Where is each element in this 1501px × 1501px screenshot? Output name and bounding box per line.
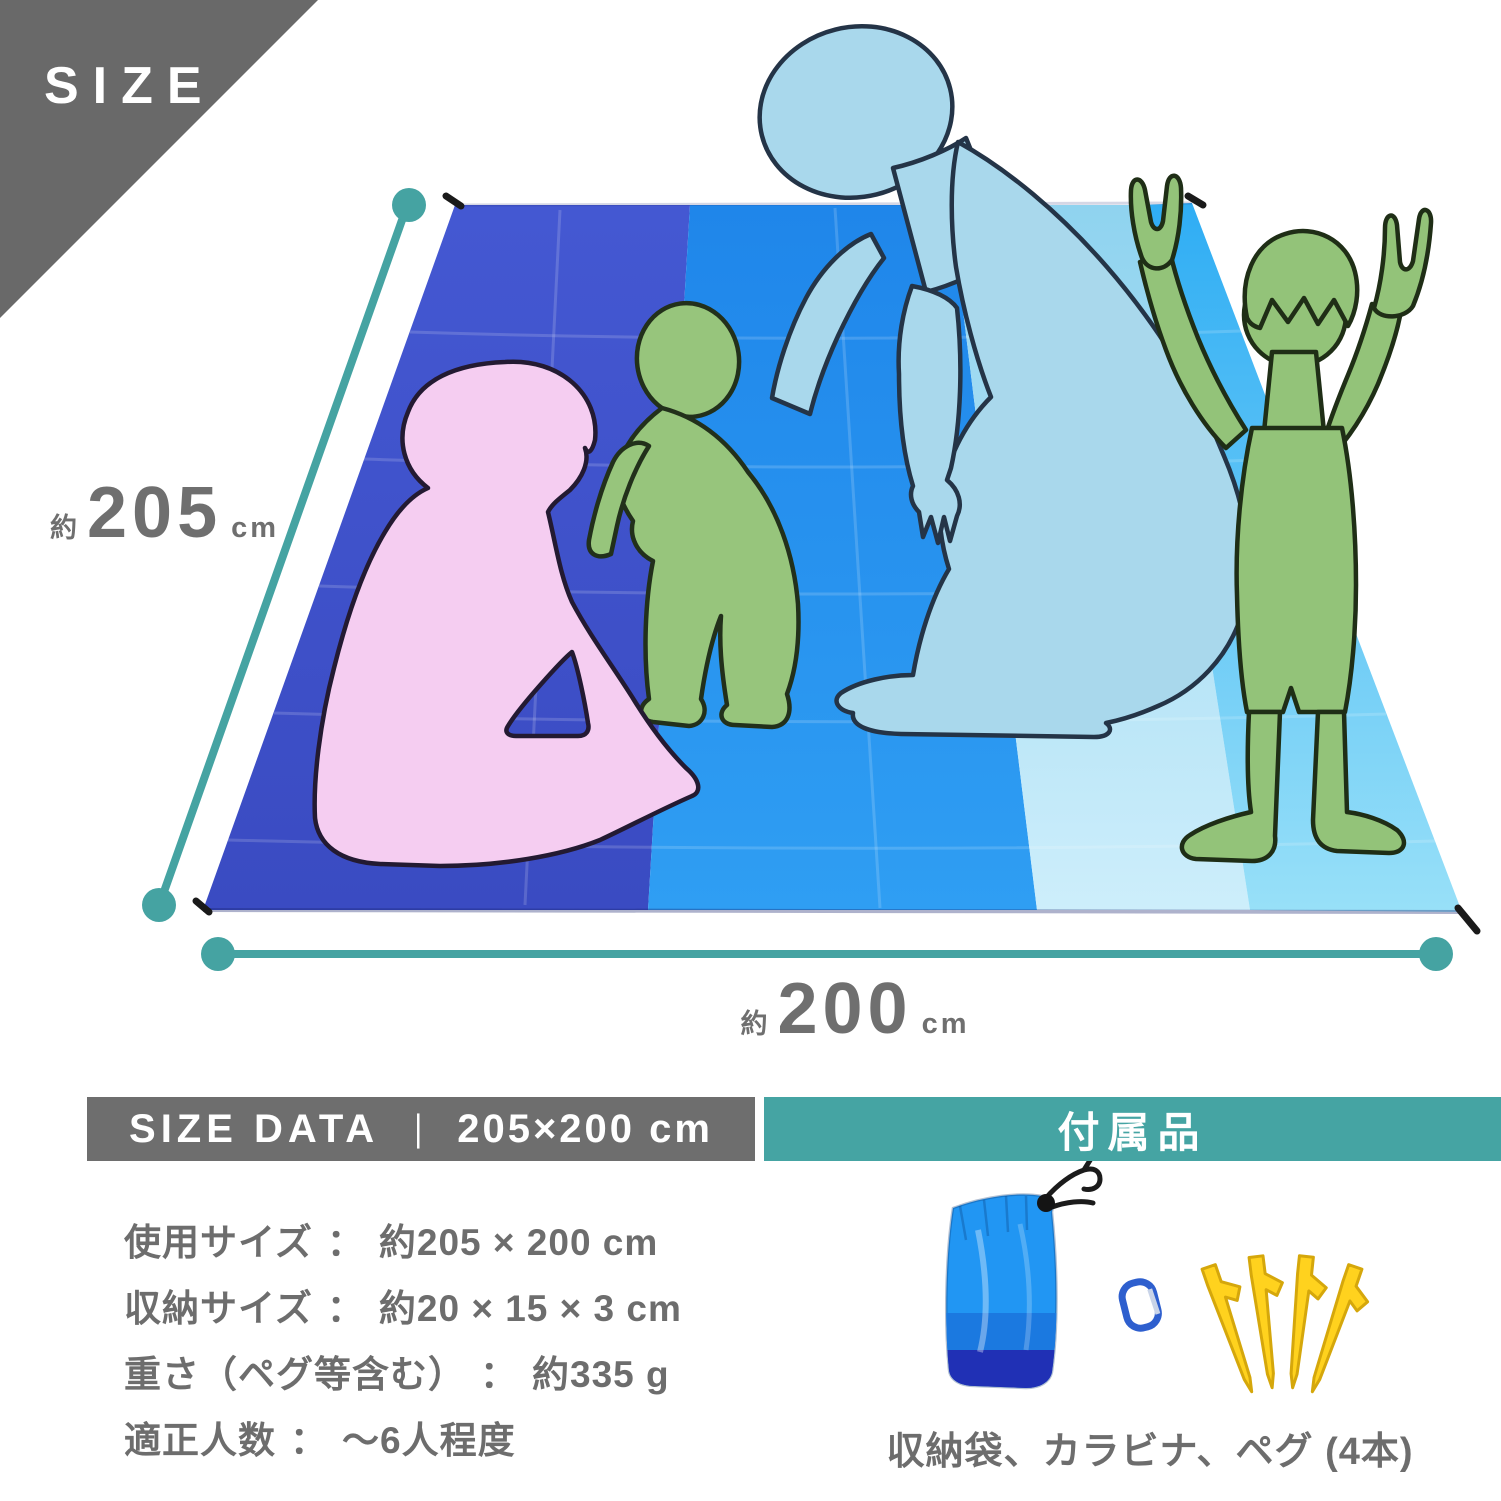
spec-value: ～6人程度 [342, 1410, 516, 1464]
spec-label: 適正人数 [124, 1410, 276, 1464]
height-approx-prefix: 約 [50, 506, 77, 545]
size-badge-title: SIZE [44, 56, 216, 116]
accessories-caption: 収納袋、カラビナ、ペグ (4本) [830, 1420, 1470, 1475]
width-dimension-label: 約 200 cm [645, 968, 1065, 1050]
height-unit: cm [231, 512, 279, 545]
child-torso [1237, 428, 1356, 712]
tent-pegs [1202, 1254, 1377, 1399]
accessories-title: 付属品 [1057, 1099, 1207, 1160]
spec-label: 収納サイズ [124, 1278, 313, 1332]
accessories-header-bar: 付属品 [764, 1097, 1501, 1161]
height-dimension-label: 約 205 cm [50, 472, 279, 554]
spec-value: 約205 × 200 cm [379, 1212, 658, 1266]
spec-value: 約20 × 15 × 3 cm [379, 1278, 682, 1332]
spec-label: 重さ（ペグ等含む） [124, 1344, 466, 1398]
width-dimension-line [201, 937, 1453, 971]
spec-row-use-size: 使用サイズ ： 約205 × 200 cm [124, 1212, 682, 1278]
size-data-value: 205×200 cm [457, 1107, 713, 1152]
spec-row-storage-size: 収納サイズ ： 約20 × 15 × 3 cm [124, 1278, 682, 1344]
storage-bag [940, 1144, 1100, 1395]
size-data-header-bar: SIZE DATA ｜ 205×200 cm [87, 1097, 755, 1161]
width-approx-prefix: 約 [740, 1002, 767, 1041]
spec-value: 約335 g [532, 1344, 670, 1398]
width-unit: cm [922, 1008, 970, 1041]
height-value: 205 [87, 472, 222, 554]
corner-triangle [0, 0, 318, 318]
carabiner [1119, 1279, 1161, 1331]
spec-row-capacity: 適正人数 ： ～6人程度 [124, 1410, 682, 1476]
child-right-hand-v-sign [1374, 210, 1431, 316]
size-data-title: SIZE DATA [129, 1107, 379, 1152]
spec-label: 使用サイズ [124, 1212, 313, 1266]
spec-row-weight: 重さ（ペグ等含む） ： 約335 g [124, 1344, 682, 1410]
spec-list: 使用サイズ ： 約205 × 200 cm 収納サイズ ： 約20 × 15 ×… [124, 1212, 682, 1476]
size-data-separator: ｜ [401, 1105, 435, 1154]
width-value: 200 [777, 968, 912, 1050]
